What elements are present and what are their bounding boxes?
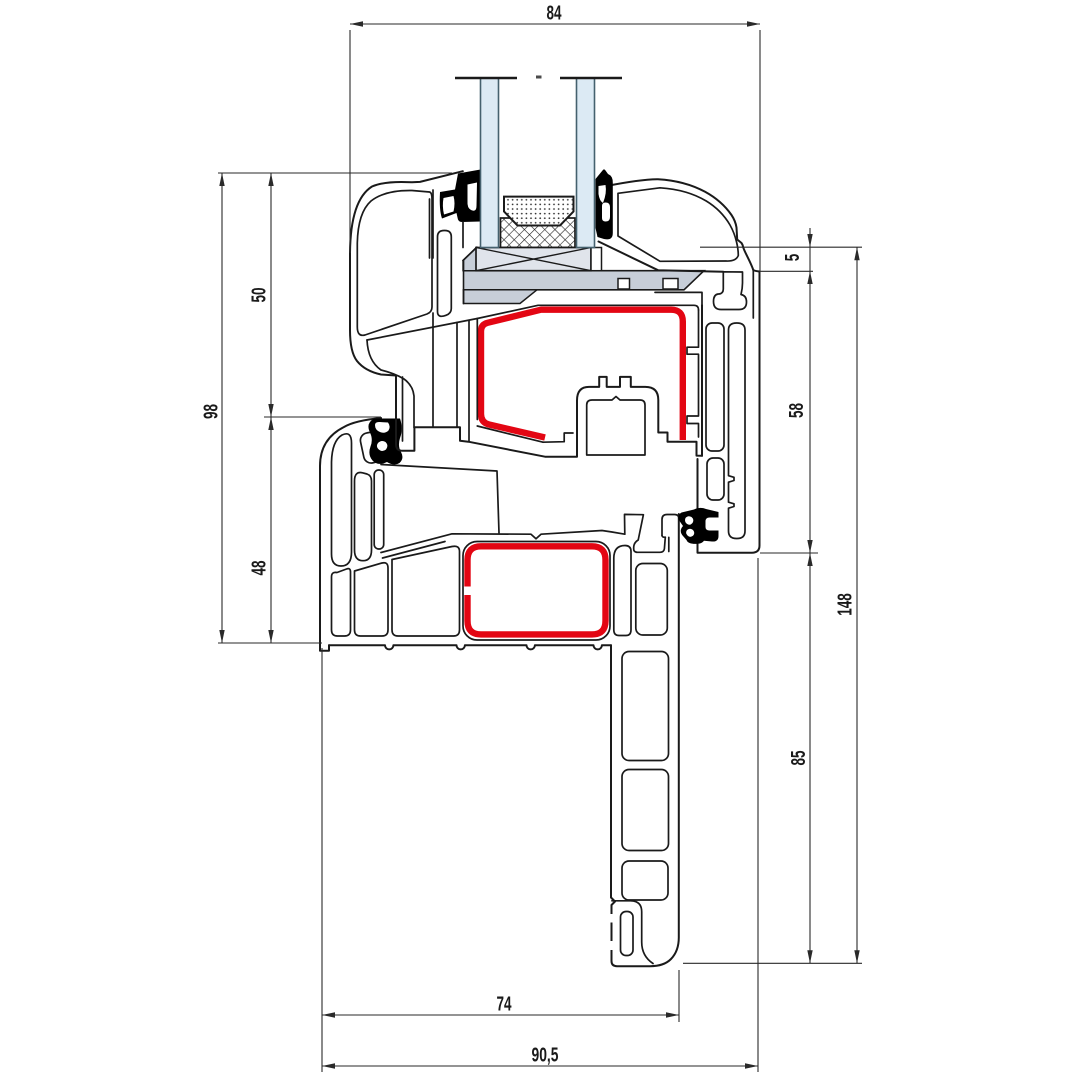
svg-text:58: 58 [786, 403, 808, 418]
svg-text:50: 50 [249, 288, 271, 303]
svg-text:84: 84 [547, 3, 563, 25]
svg-text:74: 74 [497, 994, 513, 1016]
svg-text:90,5: 90,5 [532, 1045, 559, 1067]
svg-text:5: 5 [782, 254, 804, 262]
svg-text:85: 85 [788, 751, 810, 766]
svg-text:48: 48 [249, 561, 271, 576]
svg-text:98: 98 [200, 404, 222, 419]
svg-text:148: 148 [835, 593, 857, 616]
